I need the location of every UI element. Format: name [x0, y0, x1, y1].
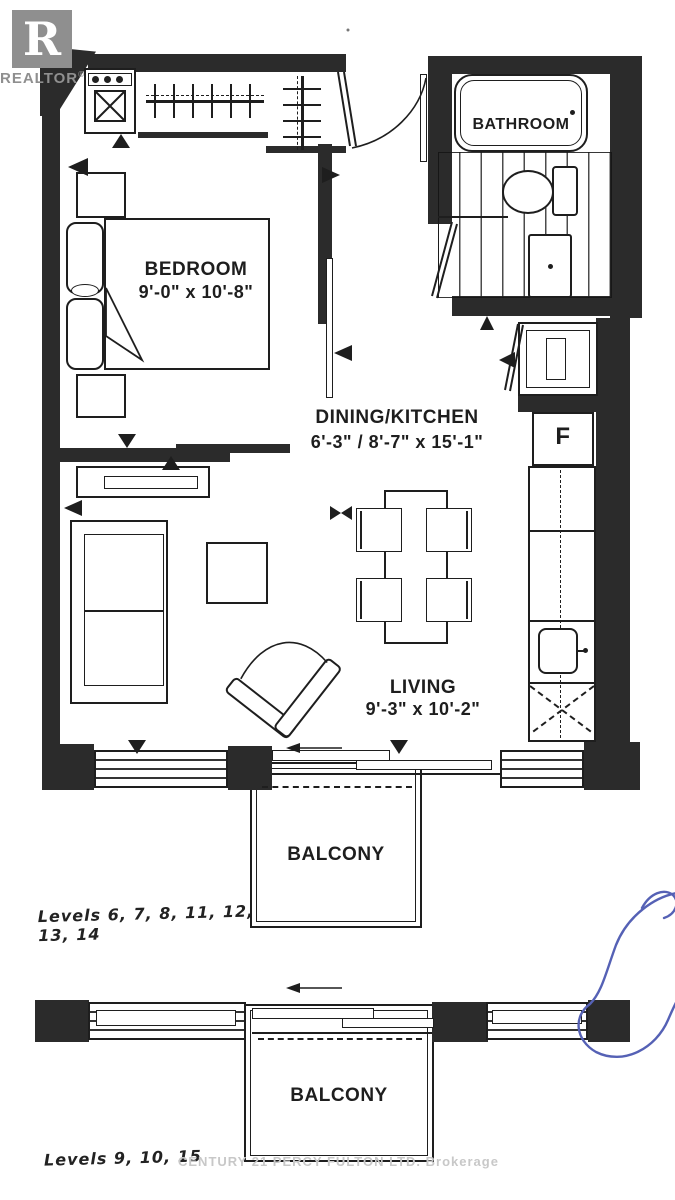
- washer-knob-2: [104, 76, 111, 83]
- pen-scribble-hook: [642, 892, 675, 918]
- marker-triangle: [480, 316, 494, 330]
- strip-block-left: [35, 1000, 89, 1042]
- kitchen-sink: [538, 628, 578, 674]
- dining-chair: [356, 508, 402, 552]
- closet1-hanger: [249, 84, 251, 118]
- realtor-brand-text: REALTOR: [0, 70, 78, 87]
- dining-chair: [426, 578, 472, 622]
- bathroom-tile-line: [438, 216, 508, 218]
- living-dimensions: 9'-3" x 10'-2": [323, 700, 523, 720]
- closet1-hanger: [192, 84, 194, 118]
- bedroom-sliding-panel-horizontal: [176, 444, 290, 453]
- chair-back: [360, 511, 362, 549]
- nightstand-bottom: [76, 374, 126, 418]
- strip-block-right: [588, 1000, 630, 1042]
- dining-kitchen-label: DINING/KITCHEN: [287, 408, 507, 429]
- bathroom-wall-bottom: [452, 296, 642, 316]
- strip-sliding-panel-b: [342, 1018, 434, 1028]
- entry-door-leaf: [338, 72, 356, 146]
- bowtie-marker: [330, 506, 341, 520]
- fridge-label: F: [532, 424, 594, 450]
- marker-triangle: [499, 352, 515, 368]
- strip-block-mid: [432, 1002, 488, 1042]
- kitchen-counter-divider: [528, 682, 596, 684]
- dining-chair: [426, 508, 472, 552]
- closet1-hanger: [173, 84, 175, 118]
- marker-triangle: [334, 345, 352, 361]
- strip-sliding-track: [252, 1032, 432, 1034]
- kitchen-counter: [528, 466, 596, 742]
- entry-door-jamb: [420, 74, 427, 162]
- balcony-sliding-door-track: [272, 773, 500, 775]
- closet1-hanger: [154, 84, 156, 118]
- bedroom-dimensions: 9'-0" x 10'-8": [86, 283, 306, 303]
- lower-balcony-label: BALCONY: [249, 1086, 429, 1107]
- vanity-drain: [548, 264, 553, 269]
- strip-window-right-sash: [492, 1010, 582, 1024]
- kitchen-bulkhead-bar: [518, 396, 608, 412]
- bedroom-sliding-panel-vertical: [326, 258, 333, 398]
- marker-triangle: [64, 500, 82, 516]
- bathtub-inner: [460, 80, 582, 146]
- registered-trademark-symbol: ®: [78, 70, 85, 79]
- dining-kitchen-dimensions: 6'-3" / 8'-7" x 15'-1": [277, 433, 517, 453]
- wall-bottom-mid-block: [228, 746, 272, 790]
- bedroom-label: BEDROOM: [96, 260, 296, 281]
- realtor-logo-wordmark: REALTOR®: [0, 70, 96, 87]
- levels-annotation-upper: Levels 6, 7, 8, 11, 12, 13, 14: [38, 901, 279, 945]
- washer-dryer-drum: [94, 90, 126, 122]
- bowtie-marker: [341, 506, 352, 520]
- realtor-logo: R: [12, 10, 72, 68]
- toilet-tank: [552, 166, 578, 216]
- kitchen-counter-dashed-centerline: [560, 470, 561, 738]
- closet1-rod-dashed: [146, 95, 264, 96]
- marker-triangle: [390, 740, 408, 754]
- wall-corner-bottom-left: [42, 744, 94, 790]
- chair-back: [360, 581, 362, 619]
- closet1-hanger: [230, 84, 232, 118]
- pantry-closet-shelf: [546, 338, 566, 380]
- kitchen-faucet-knob: [583, 648, 588, 653]
- marker-triangle: [112, 134, 130, 148]
- bathroom-label: BATHROOM: [450, 116, 592, 134]
- scan-speck: [347, 29, 350, 32]
- balcony-sliding-door-panel-b: [356, 760, 492, 770]
- floor-plan-page: BATHROOM BEDROOM 9'-0" x 10'-8" DINING/K…: [0, 0, 675, 1200]
- tv-console-inner: [104, 476, 198, 489]
- brokerage-watermark: CENTURY 21 PERCY FULTON LTD. Brokerage: [178, 1154, 518, 1169]
- coffee-table: [206, 542, 268, 604]
- bathroom-wall-right: [610, 56, 642, 318]
- nightstand-top: [76, 172, 126, 218]
- closet2-bottom-line: [266, 146, 346, 153]
- closet2-hanger: [283, 136, 321, 138]
- dining-chair: [356, 578, 402, 622]
- wall-corner-bottom-right: [584, 742, 640, 790]
- toilet-bowl: [502, 170, 554, 214]
- realtor-logo-letter: R: [23, 16, 61, 62]
- entry-door-swing-arc: [352, 78, 426, 148]
- armchair: [225, 621, 341, 739]
- sofa-cushion-divider: [84, 610, 164, 612]
- living-window-left: [94, 750, 228, 788]
- closet1-hanger: [211, 84, 213, 118]
- washer-knob-3: [116, 76, 123, 83]
- closet2-hanger: [283, 120, 321, 122]
- kitchen-counter-divider: [528, 620, 596, 622]
- slide-arrow-head: [286, 983, 300, 993]
- closet2-hanger: [283, 104, 321, 106]
- strip-window-left-sash: [96, 1010, 236, 1026]
- chair-back: [466, 511, 468, 549]
- marker-triangle: [118, 434, 136, 448]
- kitchen-counter-divider: [528, 530, 596, 532]
- bed-pillow-bottom: [66, 298, 104, 370]
- living-label: LIVING: [333, 678, 513, 699]
- closet2-hanger: [283, 88, 321, 90]
- closet1-rod: [146, 100, 264, 103]
- upper-balcony-label: BALCONY: [256, 845, 416, 866]
- closet1-bottom-line: [138, 132, 268, 138]
- bathtub-drain: [570, 110, 575, 115]
- lower-balcony-overhang-dashed: [258, 1038, 422, 1040]
- upper-balcony-overhang-dashed: [262, 786, 412, 788]
- wall-left: [42, 70, 60, 758]
- kitchen-wall-right: [596, 318, 630, 742]
- living-window-right: [500, 750, 584, 788]
- chair-back: [466, 581, 468, 619]
